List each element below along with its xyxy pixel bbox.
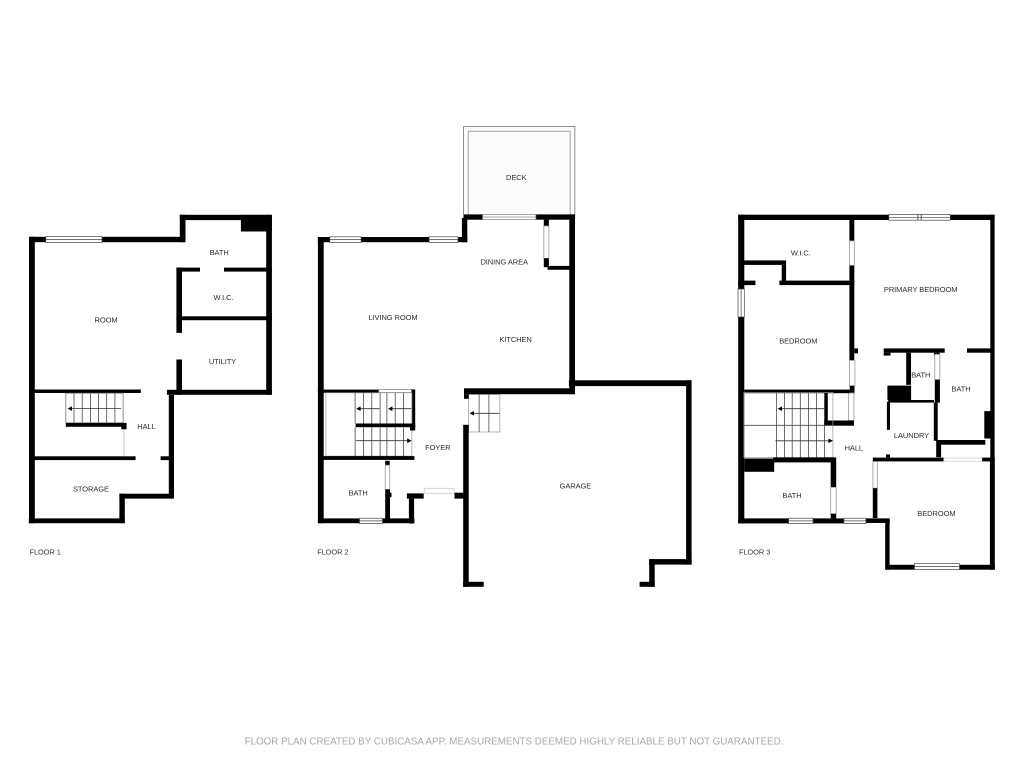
svg-text:FLOOR PLAN CREATED BY CUBICASA: FLOOR PLAN CREATED BY CUBICASA APP. MEAS… [245,737,784,748]
svg-text:BATH: BATH [210,248,229,257]
svg-text:W.I.C.: W.I.C. [791,249,811,258]
svg-text:ROOM: ROOM [94,315,117,324]
svg-text:HALL: HALL [845,444,863,453]
svg-text:FLOOR 1: FLOOR 1 [30,548,61,557]
svg-text:KITCHEN: KITCHEN [499,335,531,344]
svg-text:DECK: DECK [506,173,527,182]
svg-text:BATH: BATH [951,384,970,393]
svg-text:BATH: BATH [782,491,801,500]
svg-text:BEDROOM: BEDROOM [917,509,955,518]
svg-text:FLOOR 3: FLOOR 3 [739,548,770,557]
svg-text:BATH: BATH [911,370,930,379]
svg-text:FLOOR 2: FLOOR 2 [317,548,348,557]
svg-text:BEDROOM: BEDROOM [779,336,817,345]
svg-text:GARAGE: GARAGE [560,482,592,491]
svg-text:DINING AREA: DINING AREA [480,257,528,266]
svg-text:LIVING ROOM: LIVING ROOM [368,313,417,322]
svg-text:W.I.C.: W.I.C. [214,293,234,302]
svg-text:PRIMARY BEDROOM: PRIMARY BEDROOM [884,285,958,294]
svg-text:LAUNDRY: LAUNDRY [894,431,929,440]
svg-text:HALL: HALL [137,422,155,431]
svg-text:STORAGE: STORAGE [73,485,109,494]
svg-text:BATH: BATH [349,488,368,497]
svg-text:UTILITY: UTILITY [209,357,236,366]
svg-text:FOYER: FOYER [425,443,451,452]
